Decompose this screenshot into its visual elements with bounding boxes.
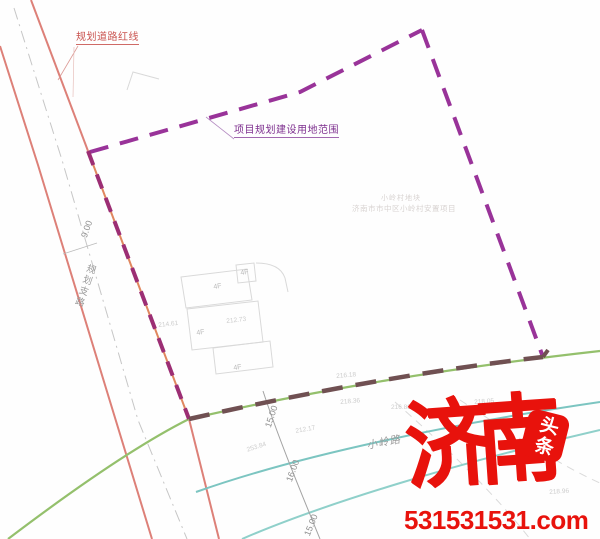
leader-lines xyxy=(58,46,234,139)
watermark-url: 531531531.com xyxy=(404,506,588,535)
site-caption-line2: 济南市市中区小岭村安置项目 xyxy=(352,205,456,213)
site-caption-line1: 小岭村地块 xyxy=(381,195,421,203)
building-outlines xyxy=(127,72,288,374)
planning-redline-label: 规划道路红线 xyxy=(76,32,139,45)
floor-label: 4F xyxy=(196,329,205,338)
elevation-label: 218.96 xyxy=(549,488,569,497)
road-centerline xyxy=(14,8,187,539)
floor-label: 4F xyxy=(240,269,249,278)
site-boundary-polygon xyxy=(88,30,548,419)
floor-label: 4F xyxy=(233,364,242,373)
road-lines xyxy=(0,0,219,539)
site-plan-map: 规划道路红线 项目规划建设用地范围 9.00 规划支路 15.00 16.00 … xyxy=(0,0,600,539)
toutiao-badge-text: 头条 xyxy=(531,413,560,458)
site-boundary-label: 项目规划建设用地范围 xyxy=(234,125,339,138)
floor-label: 4F xyxy=(213,283,222,292)
dimension-tick xyxy=(63,243,97,254)
